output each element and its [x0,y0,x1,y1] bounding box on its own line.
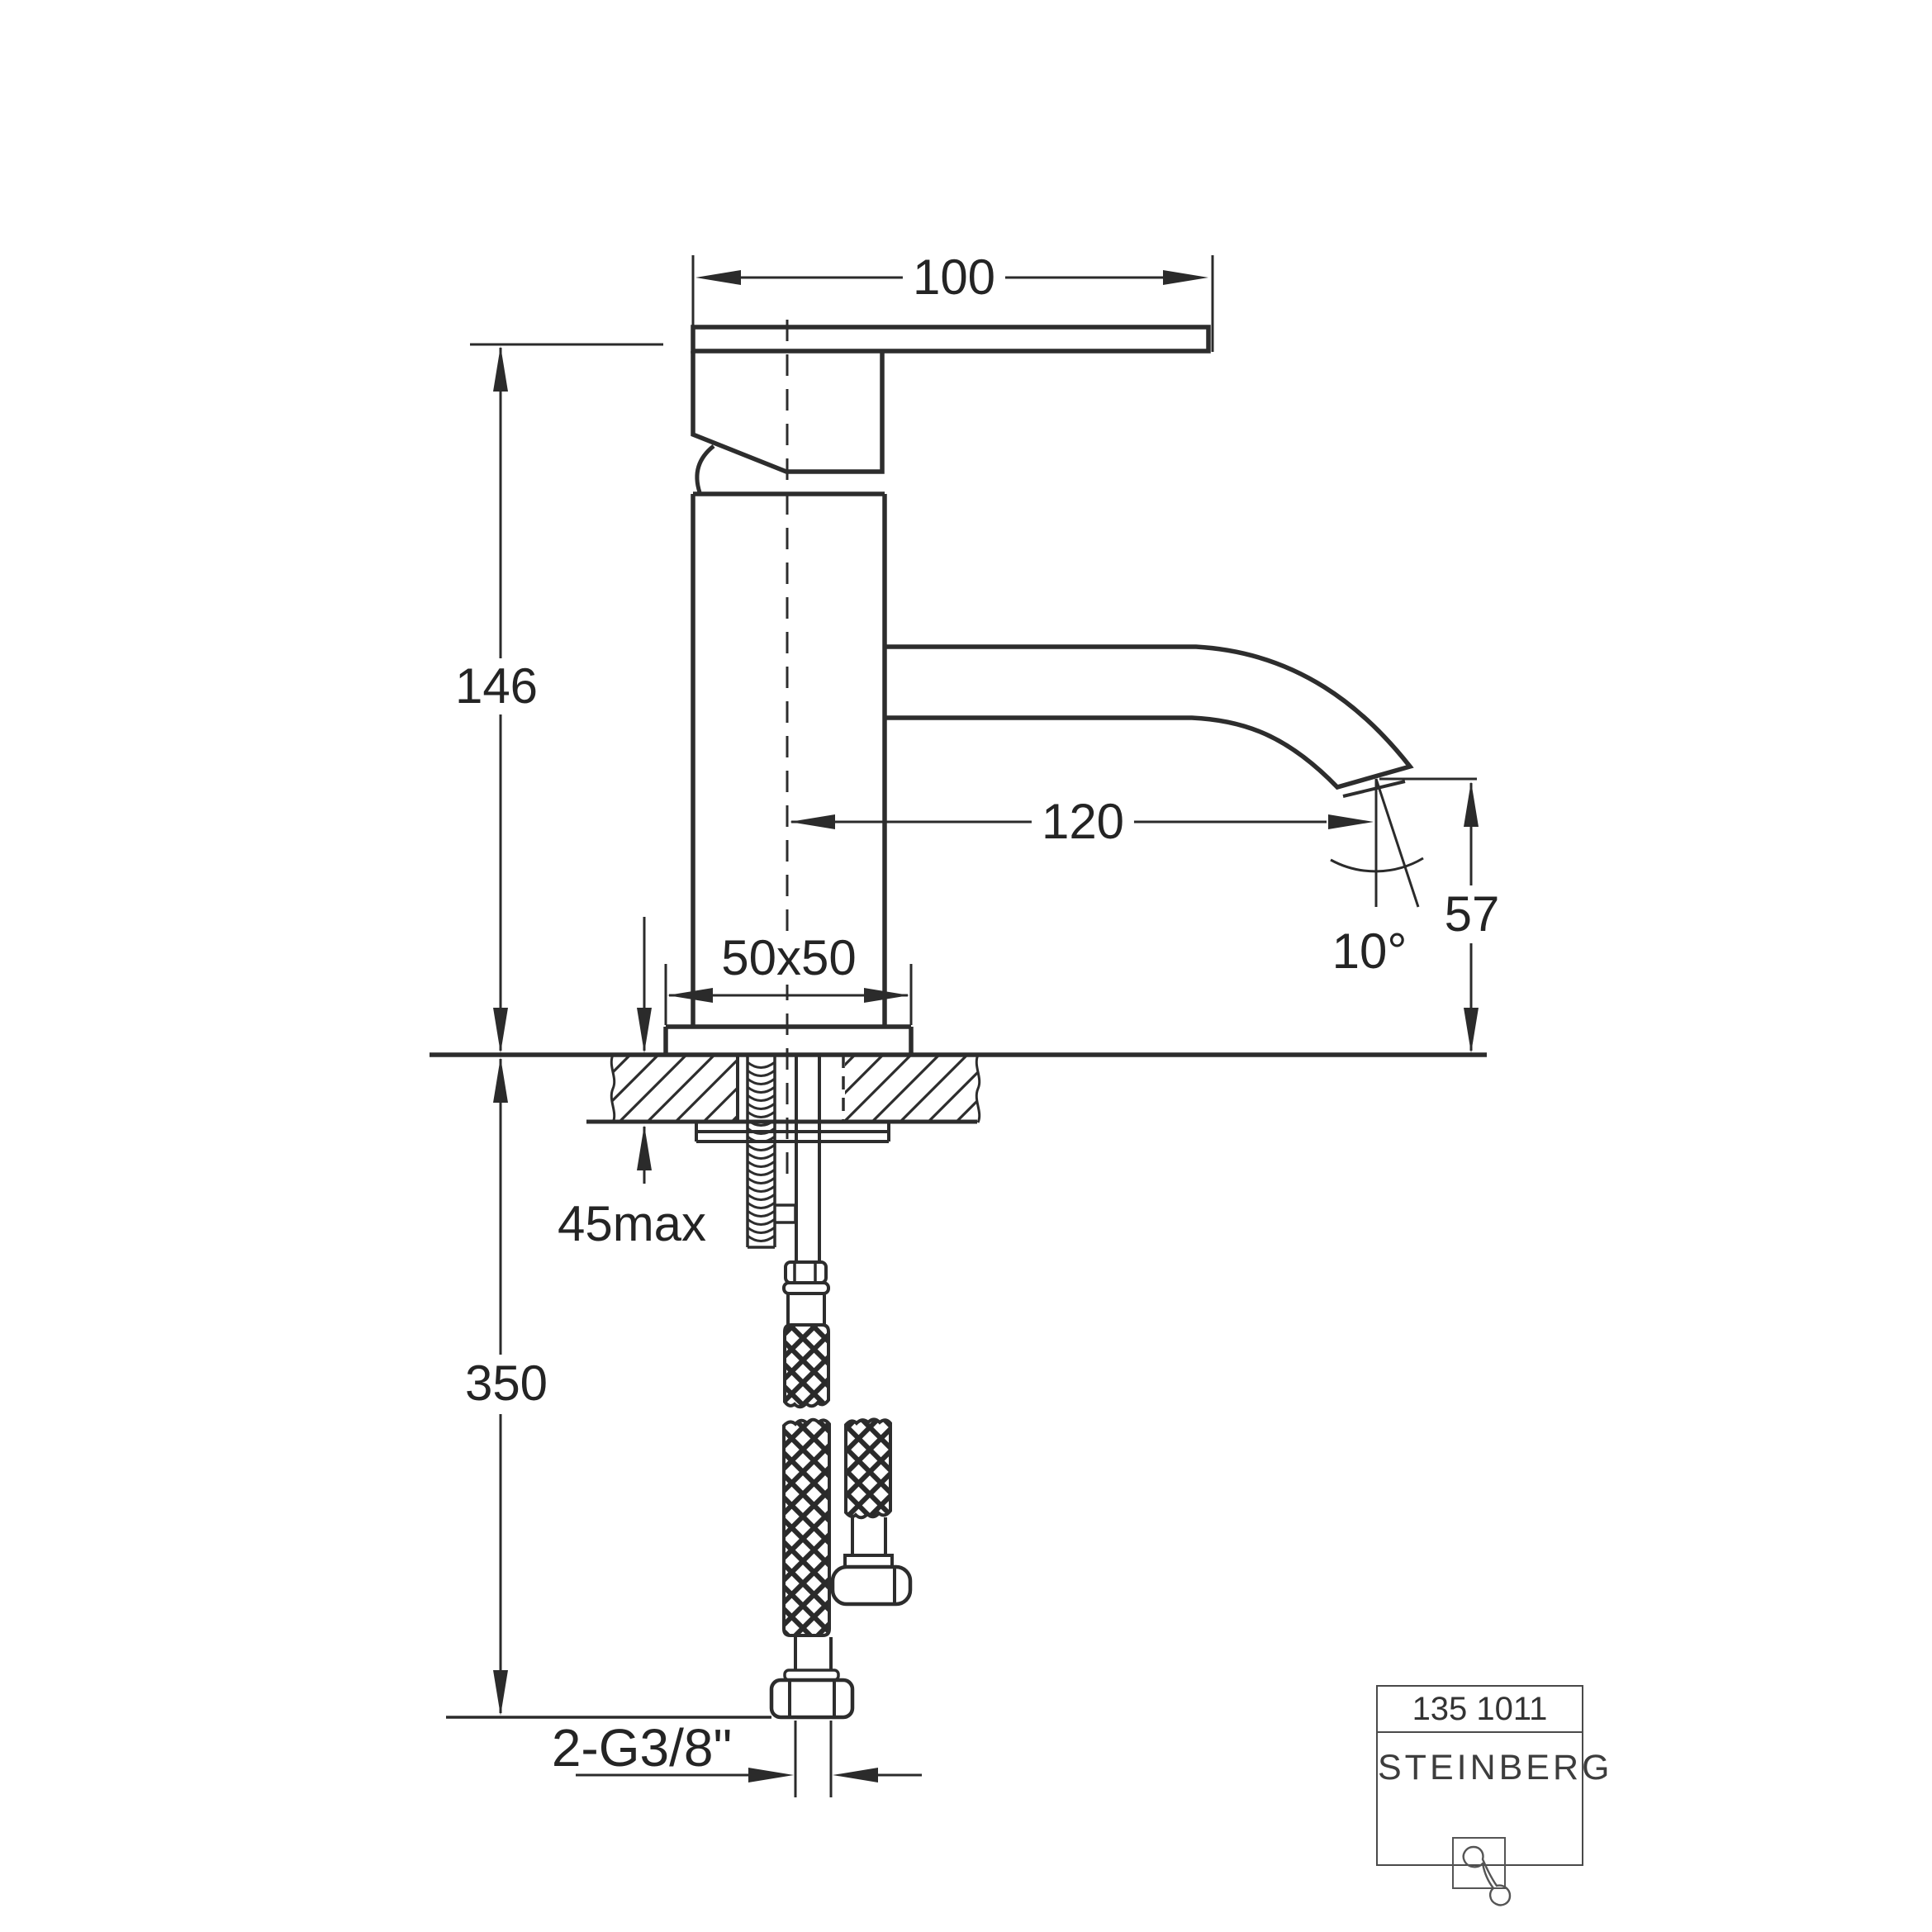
dimension-arrowheads [493,270,1479,1782]
angle-10-slant-line [1376,779,1418,907]
hose-a-hex-nut-facets [795,1262,815,1283]
dim-label-supply-connection: 2-G3/8" [552,1721,732,1774]
threaded-stud-threads [748,1062,775,1241]
arrow-350-top [493,1057,508,1103]
dim-g38-extension-lines [795,1721,831,1797]
hose-b-braid [846,1420,890,1518]
dim-label-handle-width: 100 [903,249,1005,306]
arrow-57-bottom [1464,1008,1479,1053]
dim-label-hose-length: 350 [455,1355,558,1412]
arrow-120-left [790,814,835,829]
arrow-g38-left [748,1768,794,1782]
arrow-350-bottom [493,1670,508,1716]
hose-a-pipe [796,1056,819,1262]
hose-b-pipe [852,1517,885,1555]
article-number: 135 1011 [1378,1687,1582,1733]
dim-label-max-deck-thickness: 45max [558,1199,706,1249]
brand-name: STEINBERG [1378,1748,1582,1788]
arrow-45max-up [637,1125,652,1170]
arrow-120-right [1328,814,1374,829]
spout [885,647,1410,787]
brand-cell: STEINBERG [1378,1733,1582,1868]
hose-a-neck [788,1294,824,1325]
hose-a-hex-nut [786,1262,826,1283]
arrow-g38-right [833,1768,878,1782]
counter-hatch-right [845,1055,980,1123]
dim-label-spout-angle: 10° [1332,927,1407,976]
dim-label-total-height: 146 [445,658,548,714]
dim-label-base-plate: 50x50 [714,932,862,985]
arrow-57-top [1464,781,1479,827]
handle-lever-bar [693,327,1208,351]
hose-a-collar [784,1283,828,1294]
arrow-146-bottom [493,1008,508,1053]
handle-fillet-arc [697,446,714,492]
arrow-45max-down [637,1008,652,1053]
title-block: 135 1011 STEINBERG [1376,1685,1583,1866]
hose-a-braid-upper [785,1325,828,1407]
stud-nut-tab [775,1205,795,1222]
steinberg-logo-icon [1451,1836,1517,1915]
arrow-146-top [493,346,508,392]
mounting-washer [696,1122,889,1142]
dim-label-spout-reach: 120 [1032,794,1134,850]
countertop-section [430,1055,1487,1123]
arrow-100-right [1163,270,1208,285]
hose-b-elbow-nut [833,1567,910,1604]
arrow-100-left [695,270,741,285]
technical-drawing-page: 100 146 120 57 10° 50x50 45max 350 2-G3/… [0,0,1932,1932]
hose-a-end-nut [771,1680,852,1717]
arrow-50x50-left [667,988,713,1003]
dimension-lines [446,255,1477,1797]
mounting-hardware [696,1056,910,1717]
hose-a-braid-lower [784,1420,829,1635]
counter-hatch-left [611,1055,738,1123]
dim-label-spout-height: 57 [1435,886,1510,942]
hose-a-end-nut-facets [790,1680,834,1717]
hose-a-end-pipe [795,1637,831,1670]
